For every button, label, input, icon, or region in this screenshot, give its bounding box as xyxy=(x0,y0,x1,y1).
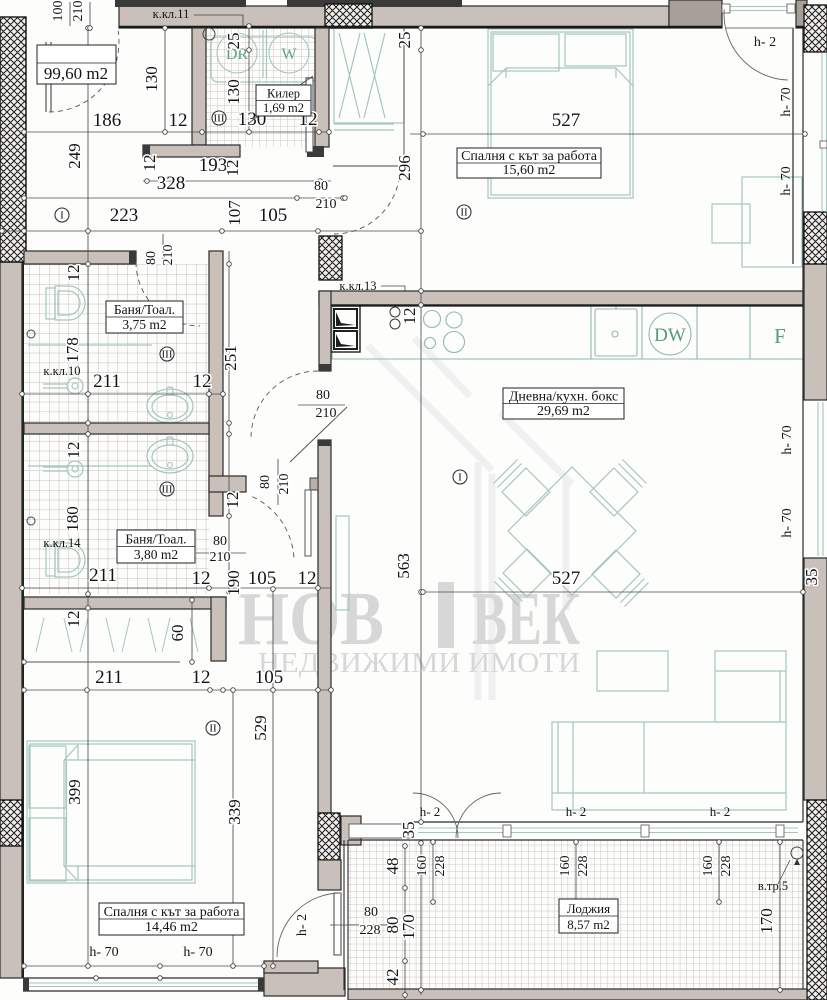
svg-text:563: 563 xyxy=(394,553,413,579)
svg-text:99,60 m2: 99,60 m2 xyxy=(44,64,108,83)
svg-text:210: 210 xyxy=(316,406,337,421)
svg-text:W: W xyxy=(281,46,297,63)
svg-text:I: I xyxy=(60,210,64,222)
svg-text:80: 80 xyxy=(316,388,330,403)
svg-text:339: 339 xyxy=(225,799,244,825)
svg-text:12: 12 xyxy=(169,110,188,131)
svg-text:251: 251 xyxy=(221,345,240,371)
svg-text:I: I xyxy=(458,472,462,484)
svg-text:h- 2: h- 2 xyxy=(566,804,587,819)
svg-text:170: 170 xyxy=(757,908,776,934)
svg-text:3,80 m2: 3,80 m2 xyxy=(134,547,178,562)
svg-text:210: 210 xyxy=(316,197,337,212)
svg-text:h- 2: h- 2 xyxy=(754,35,776,50)
svg-text:1,69 m2: 1,69 m2 xyxy=(263,101,304,115)
svg-text:80: 80 xyxy=(364,905,378,920)
svg-text:h- 2: h- 2 xyxy=(710,804,731,819)
svg-text:III: III xyxy=(162,484,173,496)
svg-text:3,75 m2: 3,75 m2 xyxy=(122,317,166,332)
svg-text:228: 228 xyxy=(433,856,448,877)
svg-text:178: 178 xyxy=(63,337,82,363)
svg-text:Баня/Тоал.: Баня/Тоал. xyxy=(114,302,175,317)
svg-text:60: 60 xyxy=(168,625,187,642)
svg-text:190: 190 xyxy=(224,570,243,596)
svg-text:к.кл.11: к.кл.11 xyxy=(153,7,190,21)
svg-text:h- 2: h- 2 xyxy=(295,914,310,936)
svg-text:DW: DW xyxy=(654,325,686,346)
svg-text:25: 25 xyxy=(395,32,414,49)
svg-text:III: III xyxy=(162,349,173,361)
svg-text:НЕДВИЖИМИ ИМОТИ: НЕДВИЖИМИ ИМОТИ xyxy=(258,648,580,679)
svg-text:160: 160 xyxy=(701,856,716,877)
svg-text:Баня/Тоал.: Баня/Тоал. xyxy=(125,532,186,547)
svg-text:48: 48 xyxy=(383,858,402,875)
svg-text:130: 130 xyxy=(224,79,243,105)
svg-text:211: 211 xyxy=(93,371,121,392)
svg-text:210: 210 xyxy=(71,1,86,22)
svg-text:228: 228 xyxy=(360,923,381,938)
svg-text:к.кл.13: к.кл.13 xyxy=(339,279,376,293)
svg-text:12: 12 xyxy=(192,667,211,688)
svg-text:170: 170 xyxy=(399,914,418,940)
svg-text:h- 70: h- 70 xyxy=(779,87,794,116)
svg-text:105: 105 xyxy=(255,667,284,688)
svg-text:228: 228 xyxy=(576,856,591,877)
svg-text:15,60 m2: 15,60 m2 xyxy=(503,163,556,178)
svg-text:12: 12 xyxy=(140,155,159,172)
svg-text:80: 80 xyxy=(314,179,328,194)
svg-text:12: 12 xyxy=(64,265,83,282)
svg-text:180: 180 xyxy=(63,506,82,532)
svg-text:h- 2: h- 2 xyxy=(420,804,441,819)
svg-text:II: II xyxy=(209,723,217,735)
svg-text:107: 107 xyxy=(225,200,244,226)
svg-text:12: 12 xyxy=(223,160,242,177)
svg-text:80: 80 xyxy=(258,475,273,489)
svg-text:12: 12 xyxy=(193,371,212,392)
svg-text:12: 12 xyxy=(298,568,317,589)
svg-text:29,69 m2: 29,69 m2 xyxy=(537,404,590,419)
svg-text:80: 80 xyxy=(213,534,227,549)
svg-text:к.кл.14: к.кл.14 xyxy=(43,536,81,550)
svg-text:160: 160 xyxy=(558,856,573,877)
svg-text:F: F xyxy=(774,324,786,348)
svg-text:12: 12 xyxy=(400,308,419,325)
svg-text:h- 70: h- 70 xyxy=(183,945,212,960)
svg-text:529: 529 xyxy=(251,715,270,741)
svg-text:160: 160 xyxy=(415,856,430,877)
svg-text:210: 210 xyxy=(277,474,292,495)
svg-text:42: 42 xyxy=(383,969,402,986)
svg-text:100: 100 xyxy=(51,1,66,22)
svg-text:186: 186 xyxy=(93,110,122,131)
svg-text:210: 210 xyxy=(161,245,176,266)
svg-text:II: II xyxy=(460,207,468,219)
svg-text:211: 211 xyxy=(89,565,117,586)
svg-text:Килер: Килер xyxy=(267,87,300,101)
svg-text:35: 35 xyxy=(802,569,821,586)
svg-text:14,46 m2: 14,46 m2 xyxy=(145,920,198,935)
svg-text:527: 527 xyxy=(552,110,581,131)
svg-text:12: 12 xyxy=(192,568,211,589)
svg-text:h- 70: h- 70 xyxy=(89,945,118,960)
svg-text:105: 105 xyxy=(259,205,288,226)
svg-text:h- 70: h- 70 xyxy=(779,166,794,195)
svg-text:8,57 m2: 8,57 m2 xyxy=(567,917,610,932)
svg-text:12: 12 xyxy=(223,492,242,509)
svg-text:296: 296 xyxy=(395,155,414,181)
svg-text:210: 210 xyxy=(210,550,231,565)
svg-text:Спалня с кът за работа: Спалня с кът за работа xyxy=(104,905,241,920)
svg-text:25: 25 xyxy=(224,33,243,50)
svg-text:в.тр.5: в.тр.5 xyxy=(758,879,788,893)
svg-text:h- 70: h- 70 xyxy=(780,425,795,454)
svg-text:12: 12 xyxy=(64,442,83,459)
svg-text:III: III xyxy=(214,113,225,125)
svg-text:399: 399 xyxy=(65,779,84,805)
svg-text:к.кл.10: к.кл.10 xyxy=(43,364,80,378)
svg-text:211: 211 xyxy=(95,667,123,688)
svg-text:80: 80 xyxy=(144,251,159,265)
svg-text:527: 527 xyxy=(552,568,581,589)
svg-text:12: 12 xyxy=(64,611,83,628)
svg-text:h- 70: h- 70 xyxy=(780,508,795,537)
svg-text:Лоджия: Лоджия xyxy=(567,901,610,916)
svg-text:Спалня с кът за работа: Спалня с кът за работа xyxy=(461,149,598,164)
svg-text:249: 249 xyxy=(65,143,84,169)
svg-text:130: 130 xyxy=(142,66,161,92)
svg-text:105: 105 xyxy=(248,568,277,589)
svg-text:328: 328 xyxy=(157,173,186,194)
svg-text:228: 228 xyxy=(719,856,734,877)
svg-text:35: 35 xyxy=(399,822,418,839)
svg-text:223: 223 xyxy=(110,205,139,226)
svg-text:Дневна/кухн. бокс: Дневна/кухн. бокс xyxy=(509,390,618,405)
